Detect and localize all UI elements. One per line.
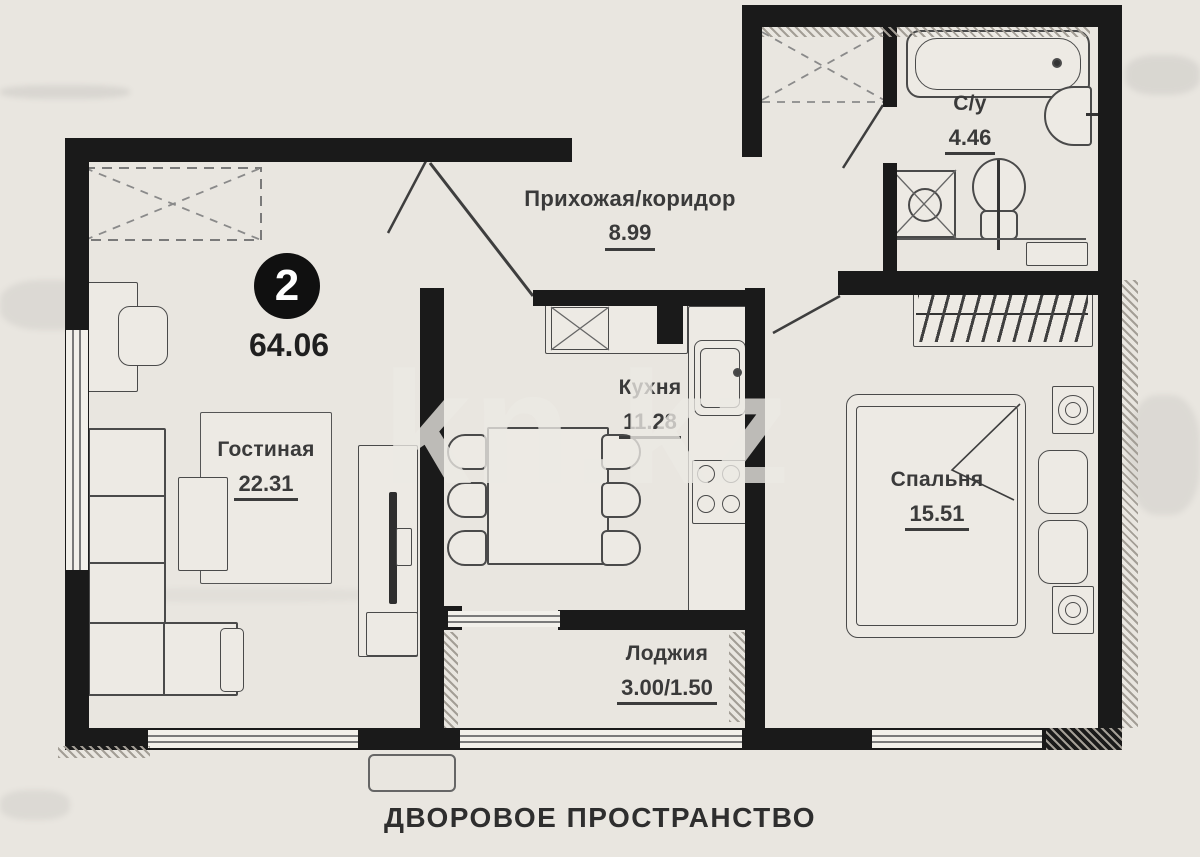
hatch-texture [1122, 280, 1138, 728]
window [148, 730, 358, 748]
wall [533, 290, 757, 306]
wall [883, 27, 897, 107]
room-area: 8.99 [605, 220, 656, 250]
wall [883, 271, 1122, 295]
room-area: 3.00/1.50 [617, 675, 717, 705]
total-area: 64.06 [224, 327, 354, 364]
room-label-living: Гостиная 22.31 [200, 438, 332, 501]
room-area: 15.51 [905, 501, 968, 531]
room-name: Прихожая/коридор [490, 186, 770, 211]
watermark: kn.kz [382, 336, 792, 520]
room-label-loggia: Лоджия 3.00/1.50 [572, 642, 762, 705]
hatch-texture [1046, 728, 1122, 750]
window [66, 330, 88, 570]
door-leaf [773, 296, 840, 333]
courtyard-caption: ДВОРОВОЕ ПРОСТРАНСТВО [0, 802, 1200, 834]
wall [883, 163, 897, 271]
window [460, 730, 742, 748]
wall [742, 5, 1122, 27]
room-name: Гостиная [200, 438, 332, 462]
room-count-badge: 2 [254, 253, 320, 319]
door-leaf [843, 105, 883, 168]
wall [65, 138, 572, 162]
wall [1098, 5, 1122, 750]
hatch-texture [762, 27, 1090, 37]
wall [558, 610, 745, 630]
room-label-bedroom: Спальня 15.51 [856, 468, 1018, 531]
room-label-bathroom: С/у 4.46 [900, 92, 1040, 155]
hatch-texture [444, 632, 458, 728]
wall [838, 271, 883, 295]
room-name: С/у [900, 92, 1040, 116]
room-name: Лоджия [572, 642, 762, 666]
floor-plan: 2 64.06 Прихожая/коридор 8.99 С/у 4.46 Г… [0, 0, 1200, 857]
window [872, 730, 1042, 748]
room-area: 22.31 [234, 471, 297, 501]
room-area: 4.46 [945, 125, 996, 155]
wall [742, 5, 762, 157]
hatch-texture [58, 746, 150, 758]
wardrobe-cross [85, 168, 261, 240]
door-leaf [388, 161, 426, 233]
room-label-hallway: Прихожая/коридор 8.99 [490, 186, 770, 251]
window [448, 611, 560, 627]
room-name: Спальня [856, 468, 1018, 492]
